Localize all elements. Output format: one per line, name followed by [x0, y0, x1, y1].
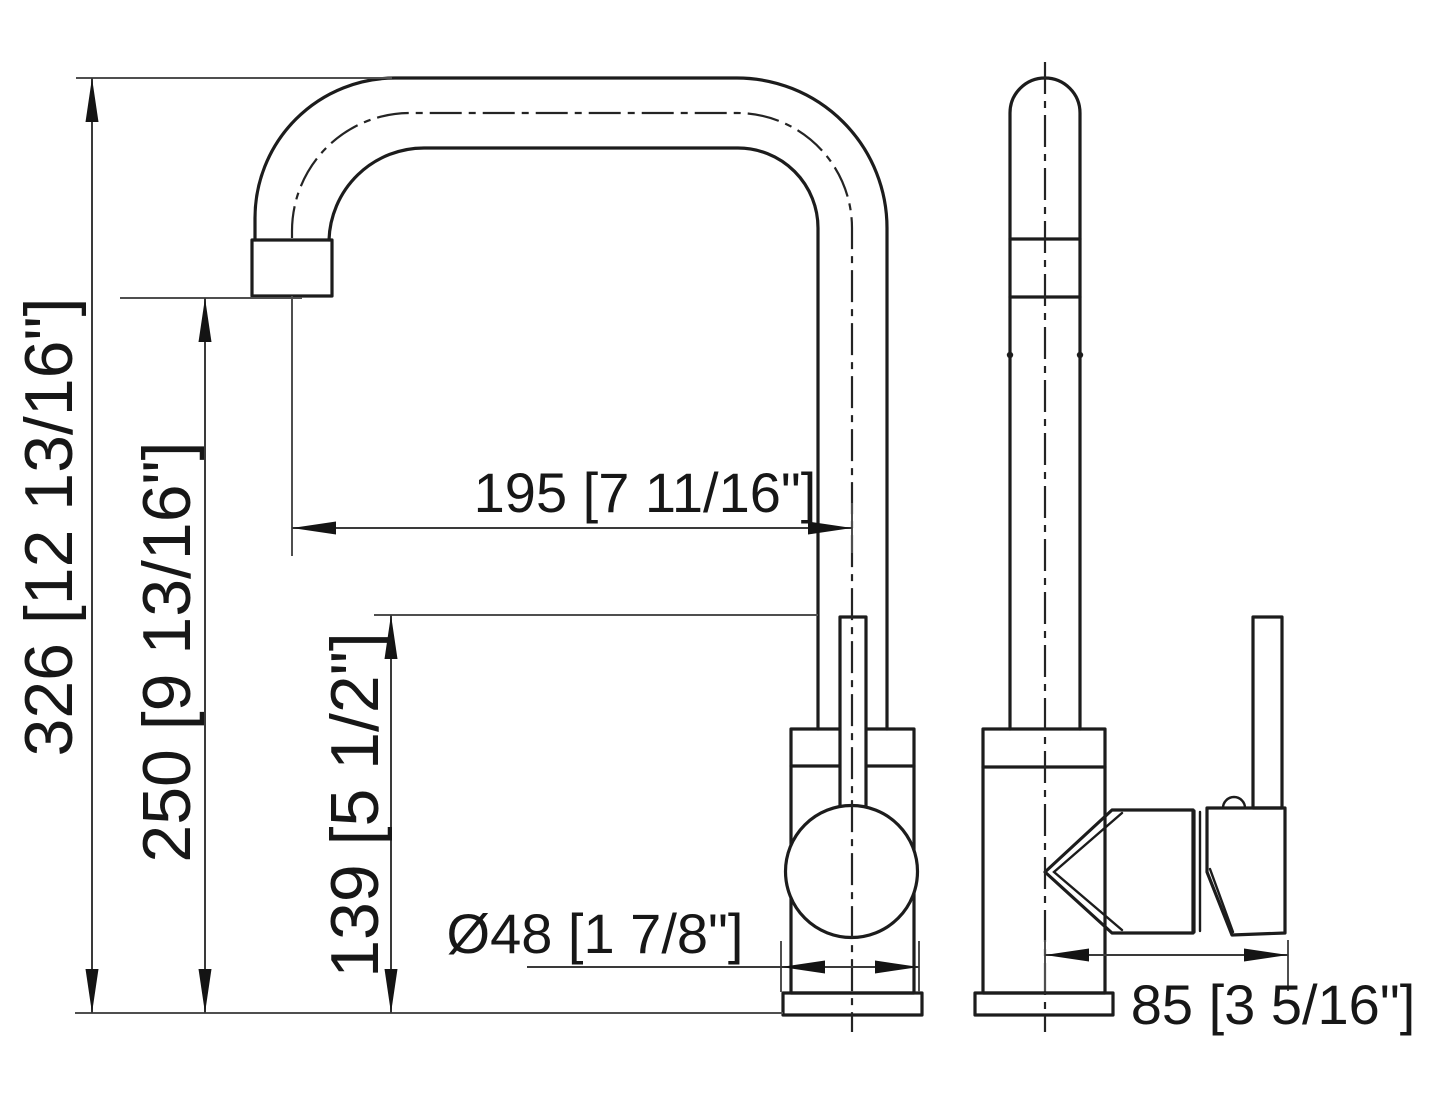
- spout-inner-contour: [329, 148, 818, 729]
- tangent-dot-right: [1077, 352, 1083, 358]
- handle-pivot-bump: [1223, 797, 1245, 808]
- technical-drawing-canvas: 326 [12 13/16"] 250 [9 13/16"] 139 [5 1/…: [0, 0, 1445, 1098]
- dimension-labels: 326 [12 13/16"] 250 [9 13/16"] 139 [5 1/…: [11, 298, 1415, 1036]
- label-spout-reach: 195 [7 11/16"]: [474, 461, 817, 524]
- arrowhead: [86, 969, 99, 1013]
- arrowhead: [199, 298, 212, 342]
- label-body-depth: 85 [3 5/16"]: [1131, 973, 1416, 1036]
- spout-outer-contour: [255, 78, 887, 729]
- tangent-dot-left: [1007, 352, 1013, 358]
- arrowhead: [781, 961, 825, 974]
- handle-grip-contour-line: [1210, 869, 1233, 932]
- arrowhead: [1244, 949, 1288, 962]
- handle-lever-side: [1253, 617, 1282, 808]
- arrowhead: [86, 78, 99, 122]
- side-view: [975, 62, 1285, 1032]
- arrowhead: [199, 969, 212, 1013]
- label-handle-top-height: 139 [5 1/2"]: [317, 632, 393, 978]
- spout-aerator: [252, 240, 332, 296]
- arrowhead: [1045, 949, 1089, 962]
- label-spout-outlet-height: 250 [9 13/16"]: [129, 441, 205, 862]
- label-overall-height: 326 [12 13/16"]: [11, 298, 87, 757]
- faucet-dimension-drawing: 326 [12 13/16"] 250 [9 13/16"] 139 [5 1/…: [0, 0, 1445, 1098]
- handle-grip-side: [1207, 808, 1285, 935]
- arrowhead: [292, 522, 336, 535]
- label-base-diameter: Ø48 [1 7/8"]: [447, 902, 744, 965]
- dimension-lines: [86, 78, 1289, 1013]
- handle-housing-side: [1045, 810, 1193, 933]
